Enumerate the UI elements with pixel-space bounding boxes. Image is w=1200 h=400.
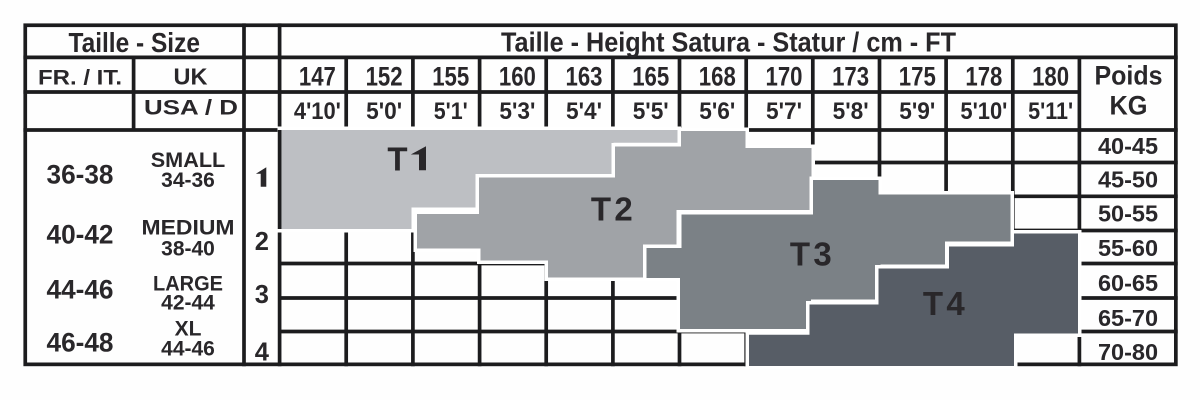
svg-text:163: 163	[566, 62, 603, 92]
svg-text:65-70: 65-70	[1098, 305, 1158, 331]
svg-text:5'7': 5'7'	[766, 98, 802, 125]
svg-text:T: T	[923, 285, 943, 322]
svg-text:180: 180	[1032, 62, 1069, 92]
svg-text:5'3': 5'3'	[499, 98, 535, 125]
svg-text:5'8': 5'8'	[833, 98, 869, 125]
svg-text:5'9': 5'9'	[899, 98, 935, 125]
svg-text:46-48: 46-48	[47, 328, 114, 358]
svg-text:3: 3	[255, 281, 269, 309]
svg-text:160: 160	[499, 62, 536, 92]
svg-text:42-44: 42-44	[161, 292, 215, 315]
svg-text:147: 147	[299, 62, 336, 92]
svg-text:40-45: 40-45	[1098, 133, 1158, 159]
svg-text:34-36: 34-36	[161, 169, 215, 192]
svg-text:Taille - Size: Taille - Size	[68, 27, 200, 58]
svg-text:4: 4	[255, 338, 270, 366]
svg-text:2: 2	[255, 228, 269, 256]
svg-text:T: T	[790, 235, 810, 272]
svg-text:40-42: 40-42	[47, 220, 114, 250]
svg-text:70-80: 70-80	[1098, 339, 1158, 365]
svg-text:44-46: 44-46	[47, 275, 114, 305]
svg-text:5'0': 5'0'	[366, 98, 402, 125]
svg-text:170: 170	[766, 62, 803, 92]
svg-text:2: 2	[614, 191, 632, 228]
svg-text:44-46: 44-46	[161, 338, 215, 361]
svg-text:175: 175	[899, 62, 936, 92]
svg-text:50-55: 50-55	[1098, 201, 1158, 227]
svg-text:38-40: 38-40	[161, 238, 215, 261]
svg-text:3: 3	[813, 235, 831, 272]
svg-text:5'6': 5'6'	[699, 98, 735, 125]
svg-text:FR. / IT.: FR. / IT.	[38, 66, 122, 90]
svg-text:Poids: Poids	[1095, 61, 1163, 91]
svg-text:5'4': 5'4'	[566, 98, 602, 125]
svg-text:55-60: 55-60	[1098, 235, 1158, 261]
svg-text:4: 4	[946, 285, 965, 322]
svg-text:45-50: 45-50	[1098, 167, 1158, 193]
svg-text:178: 178	[965, 62, 1002, 92]
svg-text:152: 152	[366, 62, 403, 92]
svg-text:Taille - Height Satura - Statu: Taille - Height Satura - Statur / cm - F…	[501, 27, 956, 58]
svg-text:165: 165	[632, 62, 669, 92]
svg-text:MEDIUM: MEDIUM	[142, 217, 235, 240]
svg-text:UK: UK	[174, 64, 208, 90]
svg-text:T: T	[591, 191, 611, 228]
svg-text:4'10': 4'10'	[294, 98, 341, 125]
svg-text:5'10': 5'10'	[960, 98, 1007, 125]
svg-text:155: 155	[432, 62, 469, 92]
svg-text:KG: KG	[1110, 91, 1148, 121]
svg-text:T: T	[387, 140, 407, 177]
svg-text:5'5': 5'5'	[633, 98, 669, 125]
svg-text:5'1': 5'1'	[434, 98, 468, 125]
svg-text:60-65: 60-65	[1098, 270, 1158, 296]
svg-text:36-38: 36-38	[47, 160, 114, 190]
svg-text:5'11': 5'11'	[1028, 98, 1073, 125]
svg-text:168: 168	[699, 62, 736, 92]
svg-text:USA / D: USA / D	[144, 96, 238, 120]
svg-text:173: 173	[832, 62, 869, 92]
